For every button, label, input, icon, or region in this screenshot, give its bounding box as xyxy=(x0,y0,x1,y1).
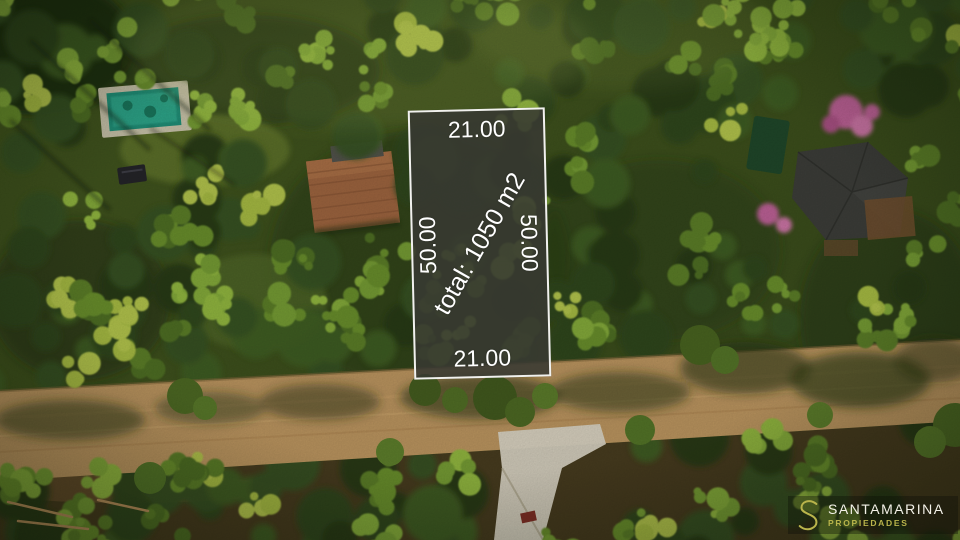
aerial-lot-photo-stage: 21.00 50.00 50.00 total: 1050 m2 21.00 S… xyxy=(0,0,960,540)
brand-watermark: SANTAMARINA PROPIEDADES xyxy=(788,496,958,534)
lot-left-dimension: 50.00 xyxy=(416,216,440,274)
brand-monogram-icon xyxy=(797,499,821,531)
brand-tagline: PROPIEDADES xyxy=(828,519,945,528)
lot-total-area-label: total: 1050 m2 xyxy=(430,168,530,318)
brand-name: SANTAMARINA xyxy=(828,502,945,517)
lot-back-dimension: 21.00 xyxy=(453,346,511,370)
lot-right-dimension: 50.00 xyxy=(517,213,541,271)
lot-front-dimension: 21.00 xyxy=(448,117,506,141)
lot-outline: 21.00 50.00 50.00 total: 1050 m2 21.00 xyxy=(408,107,552,379)
